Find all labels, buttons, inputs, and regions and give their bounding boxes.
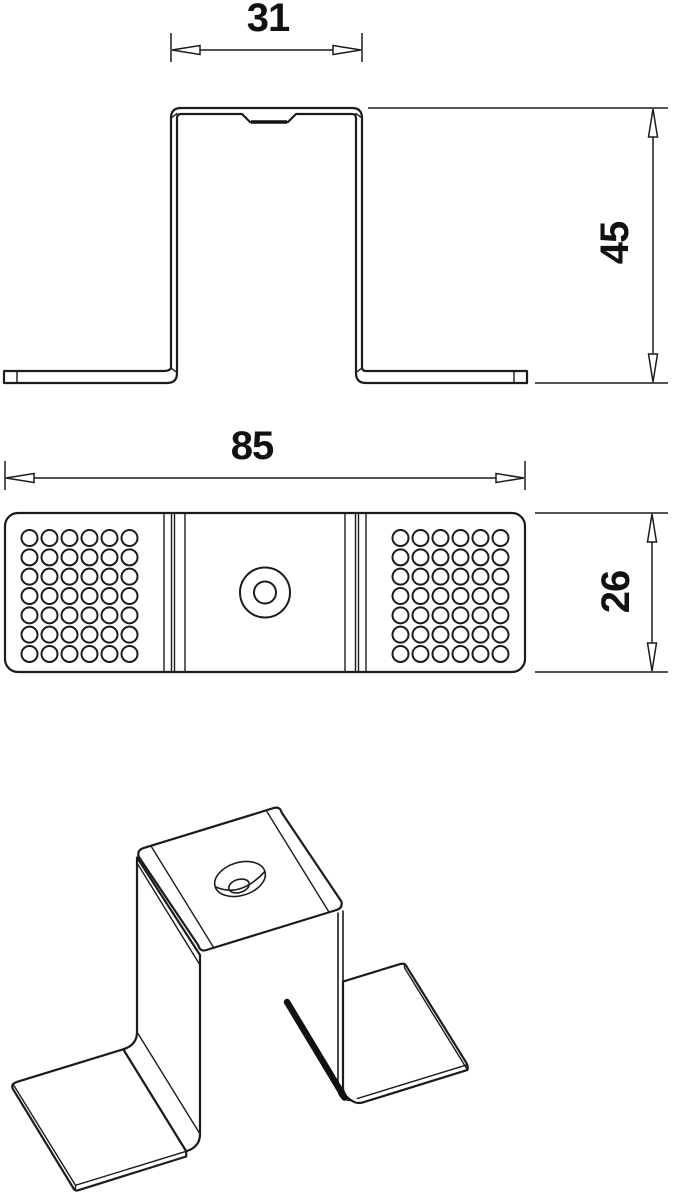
technical-drawing-canvas: 31 45 85 26 (0, 0, 674, 1196)
dim-31-label: 31 (247, 0, 290, 40)
dimension-length: 85 (5, 424, 525, 490)
top-view (5, 513, 525, 672)
iso-back-leg-edge-lines (338, 911, 343, 1090)
arrow-right-icon (333, 46, 361, 55)
iso-inner-bend-shadow (287, 1002, 345, 1098)
drawing-sheet: 31 45 85 26 (0, 0, 674, 1196)
dimension-hat-width: 31 (171, 0, 362, 62)
iso-back-leg (287, 911, 350, 1101)
iso-right-foot-plate (343, 964, 468, 1103)
front-elevation-view (4, 108, 527, 383)
isometric-view (12, 808, 468, 1191)
hat-profile-outline (4, 108, 527, 383)
iso-right-foot (298, 963, 468, 1103)
arrow-down-icon (649, 354, 658, 382)
dim-85-label: 85 (231, 424, 274, 468)
arrow-right-icon (496, 474, 524, 483)
dim-45-label: 45 (593, 221, 637, 264)
arrow-left-icon (6, 474, 34, 483)
dimension-height: 45 (368, 108, 668, 383)
arrow-up-icon (649, 109, 658, 137)
arrow-left-icon (172, 46, 200, 55)
center-hole-inner (254, 582, 276, 604)
dimension-depth: 26 (535, 513, 668, 672)
arrow-up-icon (648, 514, 657, 542)
arrow-down-icon (648, 643, 657, 671)
dim-26-label: 26 (594, 571, 638, 614)
